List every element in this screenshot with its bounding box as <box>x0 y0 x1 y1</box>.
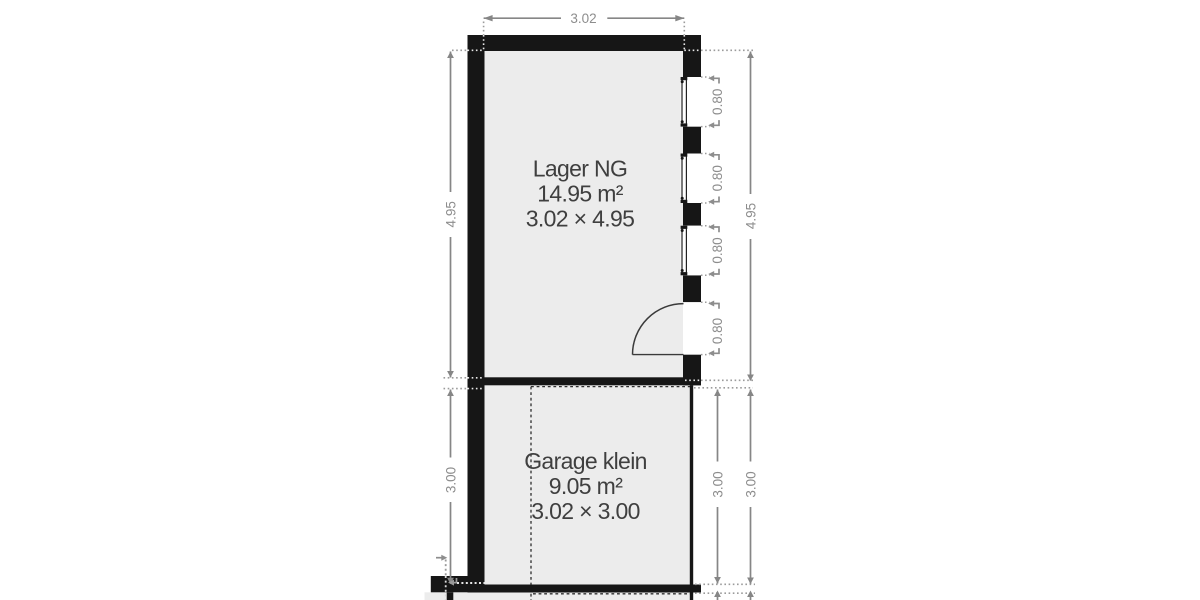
svg-text:3.00: 3.00 <box>443 467 458 493</box>
svg-text:0.80: 0.80 <box>710 318 725 344</box>
svg-text:4.95: 4.95 <box>743 203 758 229</box>
svg-text:3.02 × 3.00: 3.02 × 3.00 <box>531 498 640 524</box>
svg-text:Garage klein: Garage klein <box>524 448 647 474</box>
svg-text:3.00: 3.00 <box>710 471 725 497</box>
svg-text:3.02 × 4.95: 3.02 × 4.95 <box>526 206 635 232</box>
svg-text:4.95: 4.95 <box>443 201 458 227</box>
svg-text:0.80: 0.80 <box>710 165 725 191</box>
svg-text:14.95 m²: 14.95 m² <box>537 181 624 207</box>
svg-text:3.02: 3.02 <box>570 11 596 26</box>
svg-text:9.05 m²: 9.05 m² <box>549 473 623 499</box>
svg-text:3.00: 3.00 <box>743 471 758 497</box>
svg-text:0.80: 0.80 <box>710 89 725 115</box>
svg-text:0.80: 0.80 <box>710 237 725 263</box>
svg-text:Lager NG: Lager NG <box>533 156 628 182</box>
